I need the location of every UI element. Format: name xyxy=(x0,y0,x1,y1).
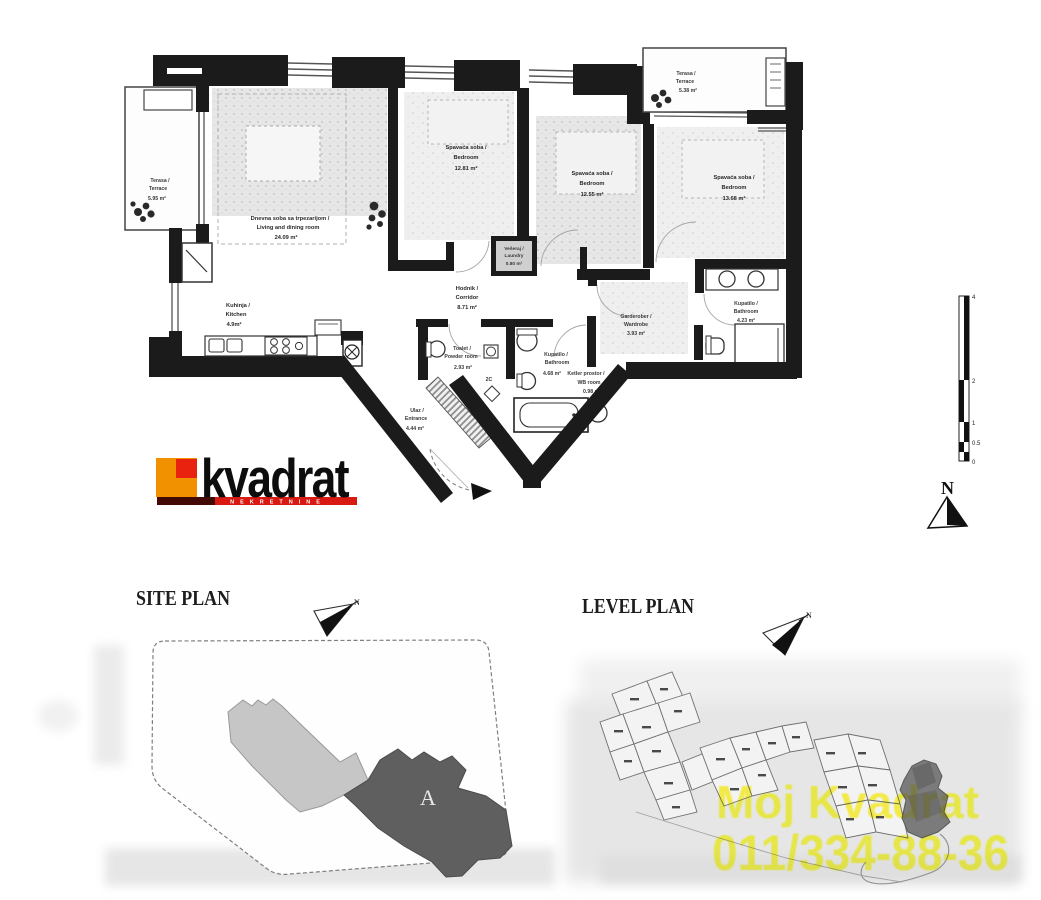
svg-text:Laundry: Laundry xyxy=(505,253,524,259)
svg-text:1: 1 xyxy=(972,421,976,427)
svg-text:Terrace: Terrace xyxy=(149,186,167,192)
svg-text:12.55 m²: 12.55 m² xyxy=(581,191,604,198)
svg-text:Dnevna soba sa trpezarijom /: Dnevna soba sa trpezarijom / xyxy=(251,216,330,222)
svg-text:Powder room: Powder room xyxy=(444,354,478,360)
svg-text:Garderober /: Garderober / xyxy=(620,314,652,320)
svg-text:Bedroom: Bedroom xyxy=(580,181,605,187)
svg-text:Spavaća soba /: Spavaća soba / xyxy=(713,175,755,181)
svg-text:4.44 m²: 4.44 m² xyxy=(406,426,424,432)
svg-text:Ulaz /: Ulaz / xyxy=(410,408,424,414)
svg-text:011/334-88-36: 011/334-88-36 xyxy=(712,825,1009,881)
svg-text:Living and dining room: Living and dining room xyxy=(257,225,320,231)
svg-text:N: N xyxy=(806,611,812,620)
svg-text:Kuhinja /: Kuhinja / xyxy=(226,303,250,309)
svg-text:Entrance: Entrance xyxy=(405,416,427,422)
svg-text:Wardrobe: Wardrobe xyxy=(624,322,648,328)
svg-text:4: 4 xyxy=(972,295,976,301)
svg-text:4.23 m²: 4.23 m² xyxy=(737,318,755,324)
svg-text:SITE PLAN: SITE PLAN xyxy=(136,586,230,610)
svg-text:Bedroom: Bedroom xyxy=(722,185,747,191)
svg-text:N: N xyxy=(941,478,954,498)
svg-text:Spavaća soba /: Spavaća soba / xyxy=(445,145,487,151)
svg-text:Kupatilo /: Kupatilo / xyxy=(544,352,568,358)
svg-text:Ketler prostor /: Ketler prostor / xyxy=(567,371,605,377)
svg-text:Terasa /: Terasa / xyxy=(676,71,696,77)
svg-text:8.71 m²: 8.71 m² xyxy=(457,304,477,311)
svg-text:4.9m²: 4.9m² xyxy=(227,321,242,328)
svg-text:Vešeraj /: Vešeraj / xyxy=(504,246,524,252)
svg-text:24.09 m²: 24.09 m² xyxy=(275,234,298,241)
svg-text:3.93 m²: 3.93 m² xyxy=(627,331,645,337)
svg-text:5.38 m²: 5.38 m² xyxy=(679,88,697,94)
svg-text:Bedroom: Bedroom xyxy=(454,155,479,161)
svg-text:Moj Kvadrat: Moj Kvadrat xyxy=(716,776,979,828)
svg-text:12.81 m²: 12.81 m² xyxy=(455,165,478,172)
svg-text:5.95 m²: 5.95 m² xyxy=(148,196,166,202)
svg-text:0: 0 xyxy=(972,460,976,466)
svg-text:Terasa /: Terasa / xyxy=(150,178,170,184)
svg-text:Hodnik /: Hodnik / xyxy=(456,286,479,292)
svg-text:Kitchen: Kitchen xyxy=(226,312,247,318)
svg-text:4.68 m²: 4.68 m² xyxy=(543,371,561,377)
svg-text:Bathroom: Bathroom xyxy=(545,360,570,366)
svg-text:Terrace: Terrace xyxy=(676,79,694,85)
svg-text:NEKRETNINE: NEKRETNINE xyxy=(230,500,326,506)
svg-text:N: N xyxy=(354,598,360,607)
svg-text:Toalet /: Toalet / xyxy=(453,346,471,352)
svg-text:2.93 m²: 2.93 m² xyxy=(454,365,472,371)
svg-text:0.5: 0.5 xyxy=(972,441,981,447)
svg-text:Kupatilo /: Kupatilo / xyxy=(734,301,758,307)
svg-text:A: A xyxy=(420,785,436,810)
svg-text:Corridor: Corridor xyxy=(456,295,480,301)
svg-text:WB room: WB room xyxy=(577,380,600,386)
svg-text:Spavaća soba /: Spavaća soba / xyxy=(571,171,613,177)
svg-text:Bathroom: Bathroom xyxy=(734,309,759,315)
svg-text:2C: 2C xyxy=(486,377,493,383)
svg-text:13.68 m²: 13.68 m² xyxy=(723,195,746,202)
svg-text:0.80 m²: 0.80 m² xyxy=(506,261,523,267)
svg-text:2: 2 xyxy=(972,379,976,385)
svg-text:LEVEL PLAN: LEVEL PLAN xyxy=(582,594,694,618)
